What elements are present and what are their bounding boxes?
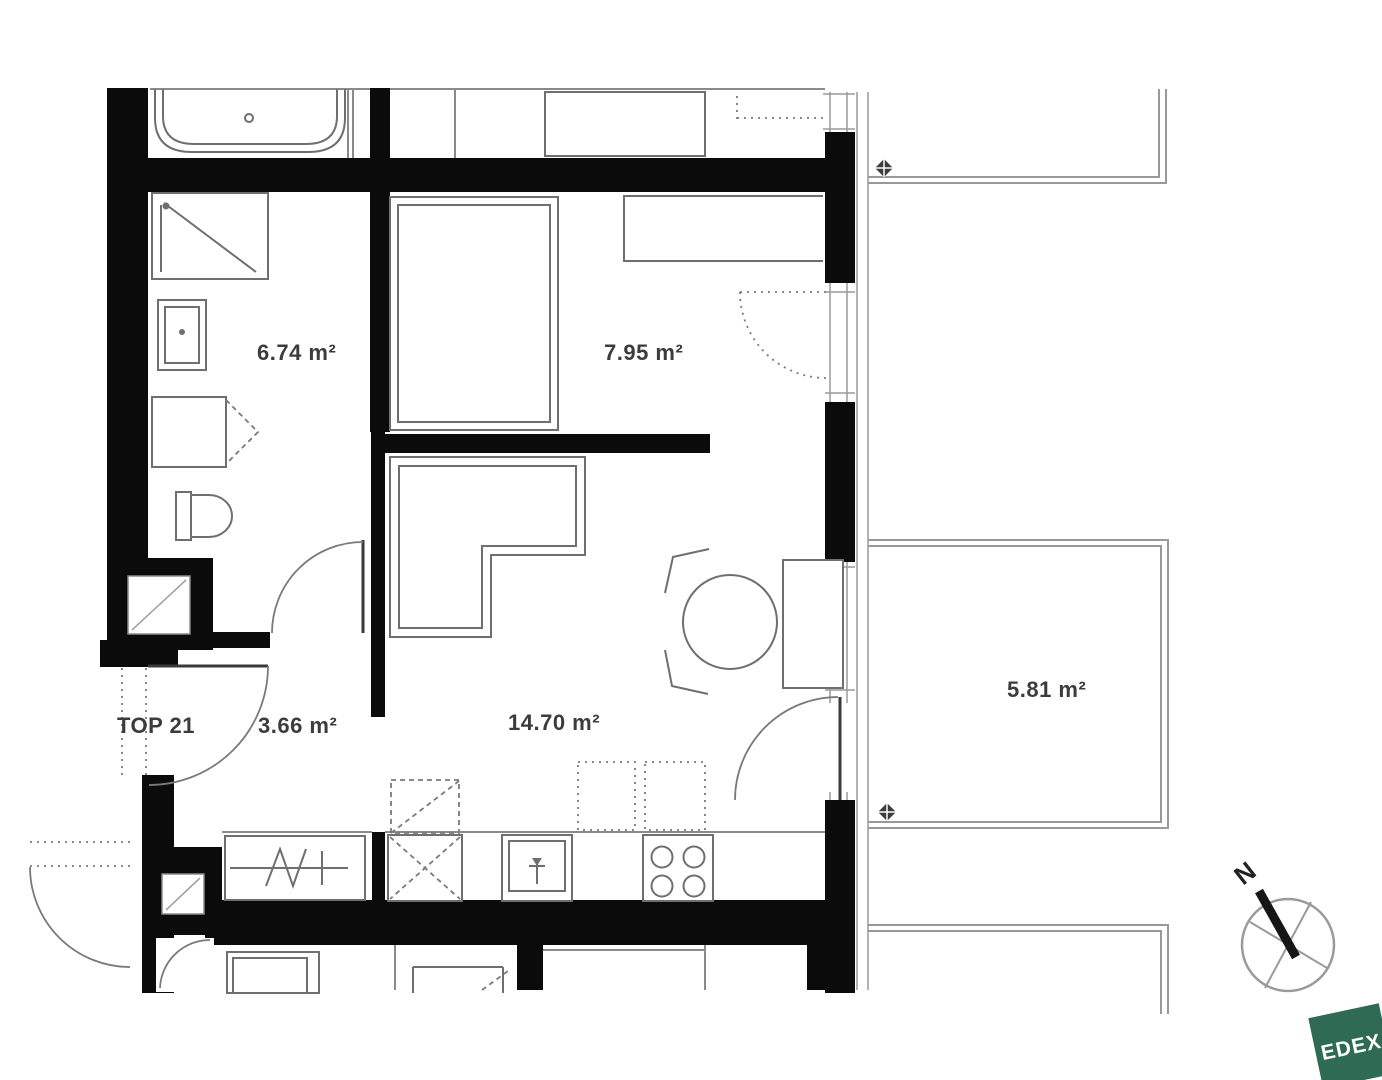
upper-wall-lines: [348, 89, 455, 158]
brand-logo: EDEX: [1308, 1003, 1382, 1080]
wall-lower-unit-pier: [517, 945, 543, 990]
stove: [643, 835, 713, 901]
upper-unit-furniture: [545, 92, 705, 156]
burner-icon: [652, 847, 673, 868]
hanger-icon: [266, 849, 306, 886]
burner-icon: [652, 876, 673, 897]
drain-icon: [878, 803, 896, 821]
floor-plan-page: 6.74 m² 7.95 m² TOP 21 3.66 m² 14.70 m² …: [0, 0, 1382, 1080]
basin-tap-icon: [179, 329, 185, 335]
wall-right-middle: [825, 402, 855, 562]
wall-lower-unit-right: [807, 945, 855, 990]
kitchen-sink: [502, 835, 572, 901]
wall-kitchen-pier: [372, 832, 385, 902]
balcony-upper-neighbour: [868, 89, 1166, 183]
balcony-door-swing: [735, 697, 838, 800]
corridor-door-swing: [30, 867, 130, 967]
chair: [665, 549, 709, 593]
compass-rose: N: [1228, 856, 1334, 991]
kitchen-strip: [222, 762, 825, 901]
facade-lines: [857, 92, 868, 990]
bed: [390, 197, 558, 430]
wall-bedroom-living: [382, 434, 710, 453]
bathroom-area-label: 6.74 m²: [257, 340, 336, 365]
facade-and-balconies: [857, 89, 1168, 1014]
balcony-area-label: 5.81 m²: [1007, 677, 1086, 702]
shower: [152, 193, 268, 279]
drain-icon: [875, 159, 893, 177]
wall-left: [107, 88, 148, 565]
upper-cabinet-dashed: [578, 762, 635, 830]
desk: [624, 196, 823, 261]
wall-below-shaft: [100, 640, 178, 667]
tall-cabinet: [388, 780, 462, 901]
living-area-label: 14.70 m²: [508, 710, 600, 735]
upper-unit-fragments: [150, 89, 855, 158]
wall-bathroom-south: [205, 632, 270, 648]
wall-top: [148, 158, 855, 192]
burner-icon: [684, 876, 705, 897]
shower-head-icon: [163, 203, 170, 210]
washbasin: [158, 300, 206, 370]
bedroom-area-label: 7.95 m²: [604, 340, 683, 365]
hallway-area-label: 3.66 m²: [258, 713, 337, 738]
toilet: [176, 492, 232, 540]
bathroom-door-swing: [272, 542, 363, 633]
sideboard: [783, 560, 843, 688]
bedroom-furniture: [390, 196, 823, 430]
upper-window-frame: [823, 92, 855, 132]
corridor-door-opening: [30, 842, 130, 866]
wall-bottom: [205, 900, 855, 945]
wall-interior-vertical: [370, 88, 390, 432]
chair: [665, 650, 708, 694]
wall-right-upper: [825, 132, 855, 283]
upper-cabinet-dashed: [645, 762, 705, 830]
unit-number-label: TOP 21: [117, 713, 195, 738]
balcony-lower-neighbour: [868, 925, 1168, 1014]
wall-interior-vertical-thin: [371, 432, 385, 717]
lower-unit-arrow: [482, 971, 508, 990]
bedroom-door-swing-dotted: [740, 292, 826, 378]
lower-unit-tub-inner: [233, 958, 307, 993]
walls: [100, 88, 855, 993]
bathtub: [155, 89, 345, 152]
washing-machine: [152, 397, 258, 467]
lower-unit-furniture: [413, 967, 503, 993]
dining-table: [683, 575, 777, 669]
wardrobe: [225, 836, 365, 900]
floor-plan-drawing: 6.74 m² 7.95 m² TOP 21 3.66 m² 14.70 m² …: [0, 0, 1382, 1080]
lower-unit-fragments: [227, 945, 705, 993]
corner-sofa: [390, 457, 585, 637]
compass-north-label: N: [1228, 856, 1261, 891]
living-furniture: [390, 457, 843, 694]
upper-unit-door-swing: [737, 96, 823, 120]
bathroom-fixtures: [152, 193, 268, 540]
burner-icon: [684, 847, 705, 868]
bathtub-tap-icon: [245, 114, 253, 122]
